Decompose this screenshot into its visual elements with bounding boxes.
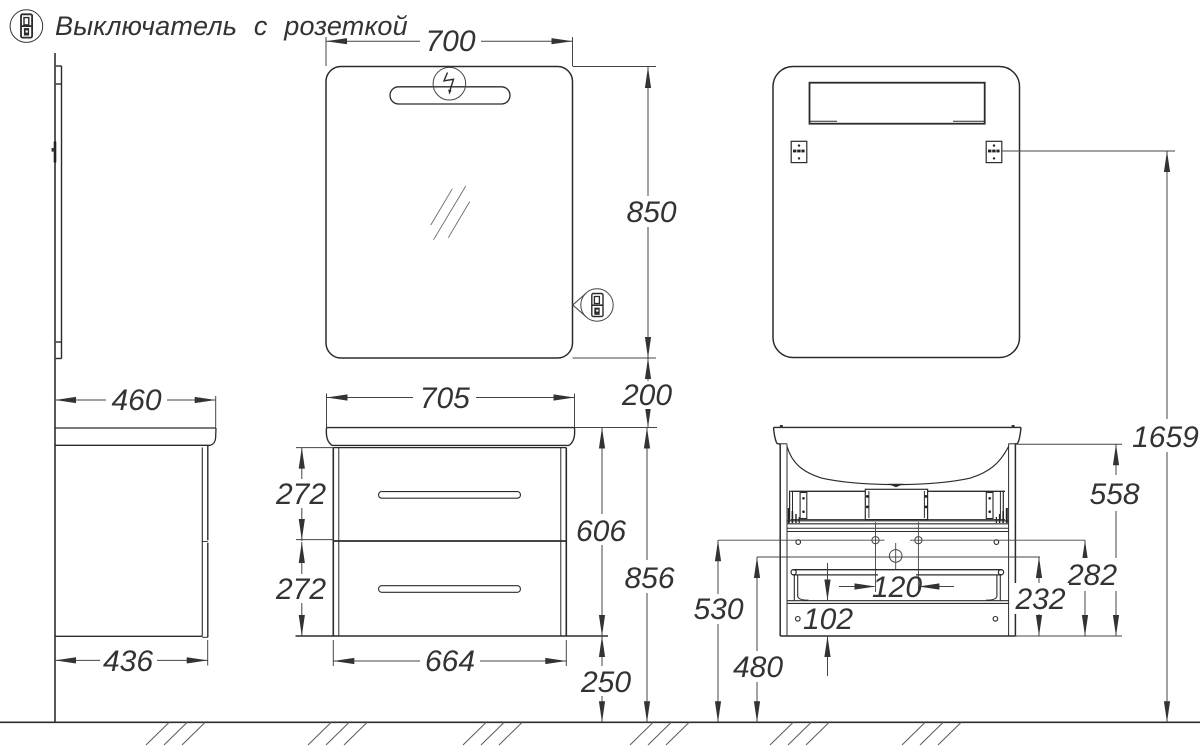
svg-text:480: 480	[733, 651, 783, 684]
svg-text:282: 282	[1066, 559, 1117, 592]
svg-text:120: 120	[872, 571, 922, 604]
svg-text:558: 558	[1089, 478, 1139, 511]
svg-text:250: 250	[580, 666, 631, 699]
svg-text:200: 200	[621, 379, 672, 412]
svg-text:272: 272	[275, 478, 326, 511]
svg-text:Выключатель с розеткой: Выключатель с розеткой	[55, 11, 408, 41]
svg-text:272: 272	[275, 573, 326, 606]
svg-text:850: 850	[626, 196, 676, 229]
svg-text:102: 102	[803, 603, 853, 636]
svg-text:700: 700	[425, 25, 475, 58]
svg-text:856: 856	[624, 562, 674, 595]
svg-text:530: 530	[693, 593, 743, 626]
svg-text:705: 705	[420, 382, 470, 415]
svg-text:460: 460	[111, 384, 161, 417]
svg-text:436: 436	[103, 645, 153, 678]
svg-text:664: 664	[425, 645, 475, 678]
svg-text:1659: 1659	[1132, 421, 1199, 454]
svg-text:232: 232	[1014, 583, 1065, 616]
svg-text:606: 606	[576, 515, 626, 548]
